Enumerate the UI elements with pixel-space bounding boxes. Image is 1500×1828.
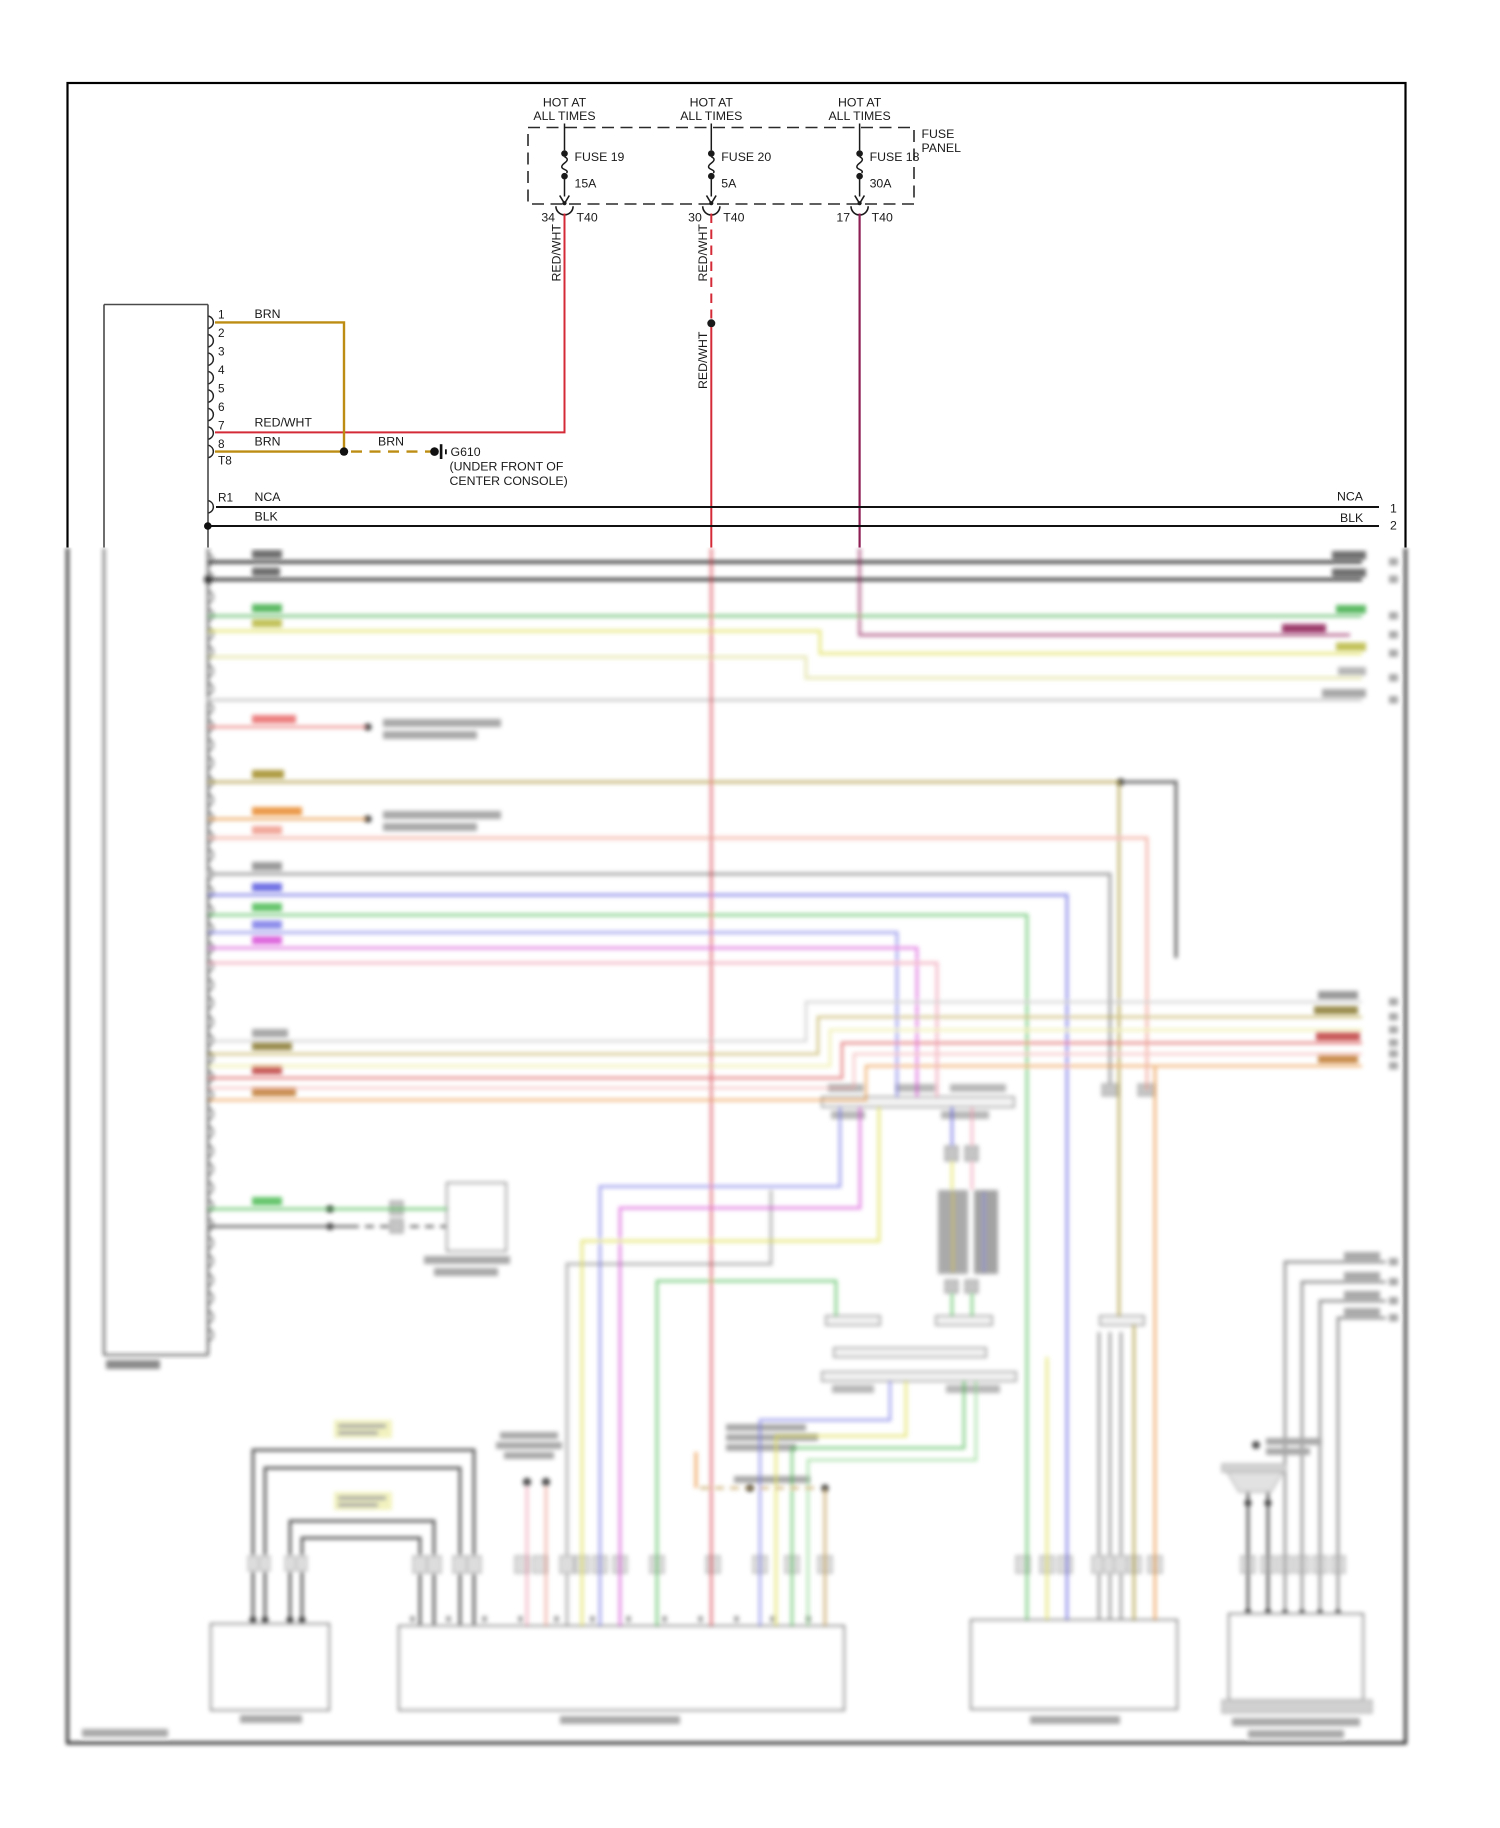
svg-text:30: 30 (688, 211, 702, 225)
svg-text:8: 8 (218, 437, 225, 451)
svg-text:CENTER CONSOLE): CENTER CONSOLE) (450, 474, 568, 488)
svg-text:T8: T8 (218, 454, 232, 468)
svg-text:RED/WHT: RED/WHT (696, 331, 710, 389)
svg-text:T40: T40 (872, 211, 893, 225)
svg-text:BRN: BRN (378, 434, 404, 448)
svg-text:R1: R1 (218, 491, 233, 505)
svg-text:1: 1 (218, 308, 225, 322)
svg-text:4: 4 (218, 363, 225, 377)
svg-text:34: 34 (541, 211, 555, 225)
svg-text:HOT AT: HOT AT (543, 96, 587, 110)
svg-text:RED/WHT: RED/WHT (550, 224, 564, 282)
svg-text:RED/WHT: RED/WHT (255, 415, 313, 429)
svg-text:7: 7 (218, 418, 225, 432)
svg-text:5A: 5A (721, 177, 737, 191)
svg-text:HOT AT: HOT AT (690, 96, 734, 110)
svg-text:BLK: BLK (255, 509, 279, 523)
svg-text:6: 6 (218, 400, 225, 414)
svg-text:NCA: NCA (255, 490, 282, 504)
svg-text:ALL TIMES: ALL TIMES (828, 109, 890, 123)
svg-text:NCA: NCA (1337, 490, 1364, 504)
svg-text:1: 1 (1390, 502, 1397, 516)
svg-text:FUSE: FUSE (922, 127, 955, 141)
svg-text:T40: T40 (577, 211, 598, 225)
svg-text:ALL TIMES: ALL TIMES (680, 109, 742, 123)
svg-text:PANEL: PANEL (922, 141, 962, 155)
svg-text:(UNDER FRONT OF: (UNDER FRONT OF (450, 460, 564, 474)
svg-text:17: 17 (836, 211, 850, 225)
svg-text:5: 5 (218, 381, 225, 395)
svg-text:FUSE 19: FUSE 19 (575, 150, 625, 164)
svg-text:RED/WHT: RED/WHT (696, 224, 710, 282)
svg-text:T40: T40 (723, 211, 744, 225)
svg-text:2: 2 (218, 326, 225, 340)
svg-text:BLK: BLK (1340, 511, 1364, 525)
svg-text:BRN: BRN (255, 307, 281, 321)
svg-text:ALL TIMES: ALL TIMES (533, 109, 595, 123)
svg-text:BRN: BRN (255, 434, 281, 448)
svg-text:G610: G610 (451, 445, 481, 459)
svg-text:2: 2 (1390, 519, 1397, 533)
svg-text:FUSE 18: FUSE 18 (870, 150, 920, 164)
svg-text:30A: 30A (870, 177, 893, 191)
svg-text:FUSE 20: FUSE 20 (721, 150, 771, 164)
svg-text:HOT AT: HOT AT (838, 96, 882, 110)
svg-text:15A: 15A (575, 177, 598, 191)
svg-text:3: 3 (218, 345, 225, 359)
